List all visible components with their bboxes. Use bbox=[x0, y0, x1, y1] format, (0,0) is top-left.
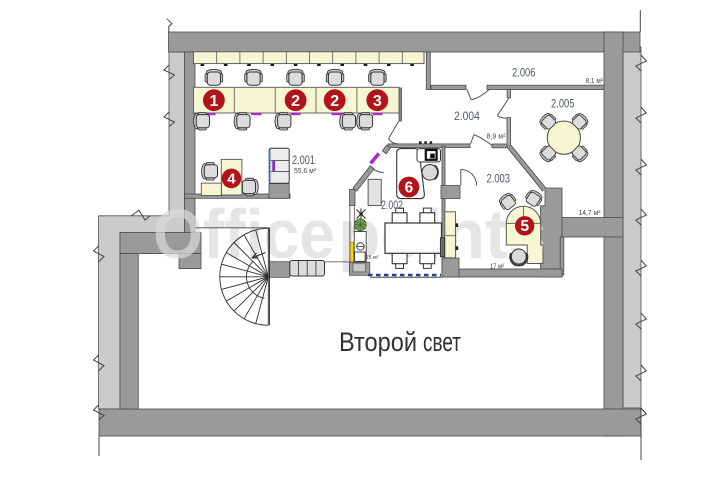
svg-text:2.003: 2.003 bbox=[487, 174, 511, 186]
svg-text:2: 2 bbox=[330, 93, 339, 110]
svg-text:5: 5 bbox=[520, 218, 529, 235]
svg-text:Второй: Второй bbox=[339, 327, 417, 357]
svg-text:55,6 м²: 55,6 м² bbox=[294, 166, 316, 175]
svg-text:15 м²: 15 м² bbox=[366, 255, 379, 261]
svg-text:4: 4 bbox=[227, 171, 236, 188]
svg-text:17 м²: 17 м² bbox=[490, 262, 504, 271]
svg-text:2: 2 bbox=[291, 93, 300, 110]
svg-text:8,9 м²: 8,9 м² bbox=[487, 132, 506, 141]
svg-text:2.004: 2.004 bbox=[454, 111, 480, 123]
svg-text:8,1 м²: 8,1 м² bbox=[586, 76, 604, 85]
svg-text:2.006: 2.006 bbox=[512, 68, 536, 80]
svg-text:3: 3 bbox=[373, 93, 382, 110]
svg-text:2.002: 2.002 bbox=[381, 200, 403, 212]
svg-text:6: 6 bbox=[405, 180, 414, 197]
svg-text:свет: свет bbox=[423, 327, 461, 357]
svg-text:1: 1 bbox=[209, 93, 218, 110]
svg-text:2.005: 2.005 bbox=[551, 99, 575, 111]
svg-text:14,7 м²: 14,7 м² bbox=[579, 208, 601, 217]
